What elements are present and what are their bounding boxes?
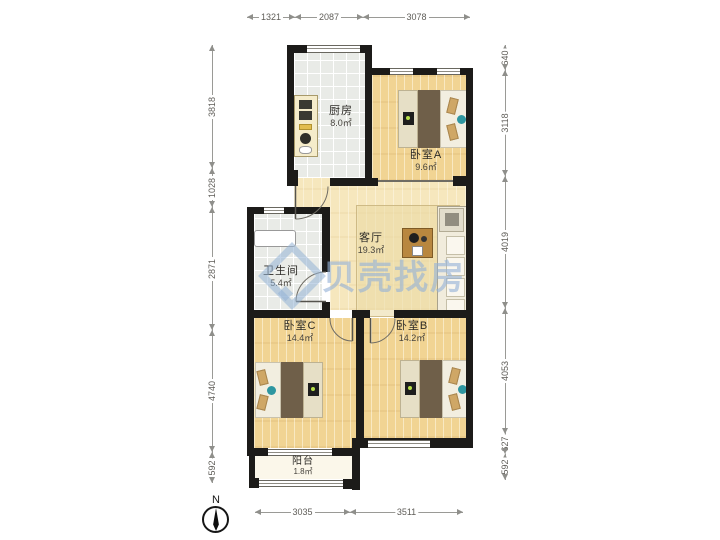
dim-label: 4053 [500, 359, 510, 383]
dim-label: 3818 [207, 94, 217, 118]
wall-balcony-cap-right [343, 479, 360, 489]
dim-bottom-seg1: 3035 [255, 512, 350, 513]
tv-icon [308, 383, 319, 396]
dim-label: 3511 [395, 507, 418, 517]
wall-kitchen-divider [365, 45, 372, 178]
sofa-cushion [446, 257, 465, 276]
pillow [446, 123, 459, 141]
bed-blanket [281, 362, 303, 418]
bed-runner [400, 360, 420, 418]
sofa-cushion [446, 278, 465, 297]
room-name: 卫生间 [263, 265, 299, 277]
pillow [448, 367, 461, 385]
dim-label: 640 [500, 48, 510, 67]
bed-blanket [418, 90, 440, 148]
bed-runner [303, 362, 323, 418]
pillow [446, 97, 459, 115]
table-item [421, 236, 427, 242]
armchair-seat [445, 213, 459, 226]
dim-left-seg4: 4740 [212, 330, 213, 452]
bathroom-vanity [254, 230, 296, 247]
dim-right-seg2: 3118 [505, 70, 506, 176]
room-label-balcony: 阳台 1.8㎡ [292, 456, 314, 477]
dim-label: 3035 [290, 507, 314, 517]
bed-cushion [457, 115, 466, 124]
kitchen-counter [294, 95, 318, 157]
table-tray [412, 246, 423, 256]
entry-door-arc [294, 185, 330, 221]
tv-icon [403, 112, 414, 125]
window-balcony-rail [259, 480, 343, 487]
dim-right-seg6: 592 [505, 454, 506, 480]
wall-bedrooms-top-right [394, 310, 473, 318]
tv-light [406, 116, 410, 120]
dim-right-seg5: 627 [505, 434, 506, 454]
wall-bath-right-lower [322, 302, 330, 310]
stove-icon [299, 100, 312, 109]
pillow [256, 369, 268, 386]
dim-left-seg3: 2871 [212, 207, 213, 330]
dim-top-seg1: 1321 [247, 17, 295, 18]
bed-bedroomC [255, 362, 323, 418]
dim-right-seg4: 4053 [505, 308, 506, 434]
bed-cushion [267, 386, 276, 395]
room-label-bedroomC: 卧室C 14.4㎡ [284, 320, 317, 343]
dim-label: 4740 [207, 379, 217, 403]
room-label-living: 客厅 19.3㎡ [358, 232, 385, 255]
tv-light [408, 386, 412, 390]
sofa [437, 206, 467, 316]
dim-bottom-seg2: 3511 [350, 512, 463, 513]
wall-bedroomA-threshold [378, 180, 455, 182]
bathroom-door-arc [295, 271, 327, 303]
room-name: 厨房 [329, 105, 353, 117]
room-label-bathroom: 卫生间 5.4㎡ [263, 265, 299, 288]
room-area: 14.4㎡ [284, 333, 317, 343]
bed-blanket [420, 360, 442, 418]
coffee-table [402, 228, 433, 258]
dim-label: 1321 [259, 12, 283, 22]
bed-runner [398, 90, 418, 148]
room-area: 19.3㎡ [358, 245, 385, 255]
dim-top-seg2: 2087 [295, 17, 363, 18]
window-bedroomA-1 [390, 68, 413, 75]
dim-label: 3078 [404, 12, 428, 22]
bed-bedroomA [398, 90, 467, 148]
room-name: 卧室A [410, 149, 442, 161]
dim-label: 592 [500, 457, 510, 476]
room-name: 客厅 [358, 232, 385, 244]
dim-left-seg5: 592 [212, 452, 213, 483]
wall-entry-stub [287, 170, 298, 186]
room-label-kitchen: 厨房 8.0㎡ [329, 105, 353, 128]
bed-mattress [442, 360, 468, 418]
dim-label: 1028 [207, 175, 217, 199]
cutting-board-icon [299, 124, 312, 130]
window-bathroom [264, 207, 284, 214]
sofa-cushion [446, 236, 465, 255]
room-name: 卧室B [396, 320, 428, 332]
dim-right-seg3: 4019 [505, 176, 506, 308]
dim-right-seg1: 640 [505, 45, 506, 70]
dim-label: 4019 [500, 230, 510, 254]
dim-label: 3118 [500, 111, 510, 134]
bed-bedroomB [400, 360, 468, 418]
window-kitchen [307, 45, 360, 53]
tv-light [311, 387, 315, 391]
compass-north-label: N [212, 494, 220, 506]
wall-bath-bottom [247, 310, 330, 318]
armchair [439, 208, 464, 232]
wall-balcony-cap-left [249, 478, 259, 488]
dim-left-seg1: 3818 [212, 45, 213, 168]
stove-icon [299, 111, 312, 120]
bedroomB-door-arc [369, 317, 396, 344]
dim-left-seg2: 1028 [212, 168, 213, 207]
dim-label: 2871 [207, 256, 217, 280]
wall-bedroomC-bottom-left [249, 448, 268, 456]
wall-kitchen-left [287, 45, 294, 178]
room-area: 8.0㎡ [329, 118, 353, 128]
bed-mattress [440, 90, 467, 148]
wall-bath-left [247, 207, 254, 318]
wall-bedroomA-stub [453, 176, 473, 186]
bedroomC-door-arc [329, 317, 354, 342]
wall-left-exterior [247, 318, 254, 456]
dim-top-seg3: 3078 [363, 17, 470, 18]
tv-icon [405, 382, 416, 395]
room-area: 5.4㎡ [263, 278, 299, 288]
wall-kitchen-bottom [330, 178, 378, 186]
dim-label: 2087 [317, 12, 341, 22]
pillow [448, 393, 461, 411]
dim-label: 592 [207, 458, 217, 477]
room-name: 阳台 [292, 456, 314, 467]
wall-bedroomCB-divider [356, 318, 364, 440]
wall-right-exterior [466, 68, 473, 448]
dim-label: 627 [500, 434, 510, 453]
room-label-bedroomB: 卧室B 14.2㎡ [396, 320, 428, 343]
pot-icon [300, 133, 311, 144]
floorplan-canvas: 厨房 8.0㎡ 卧室A 9.6㎡ 客厅 19.3㎡ 卫生间 5.4㎡ 卧室C 1… [0, 0, 720, 540]
pillow [256, 394, 268, 411]
window-bedroomB [368, 440, 430, 448]
room-label-bedroomA: 卧室A 9.6㎡ [410, 149, 442, 172]
table-item [409, 233, 419, 243]
room-name: 卧室C [284, 320, 317, 332]
window-bedroomA-2 [437, 68, 460, 75]
room-area: 9.6㎡ [410, 162, 442, 172]
room-area: 14.2㎡ [396, 333, 428, 343]
sink-icon [299, 146, 312, 154]
room-area: 1.8㎡ [292, 468, 314, 477]
wall-bedrooms-top-mid [352, 310, 370, 318]
bed-mattress [255, 362, 281, 418]
window-balcony-slider [268, 449, 332, 456]
